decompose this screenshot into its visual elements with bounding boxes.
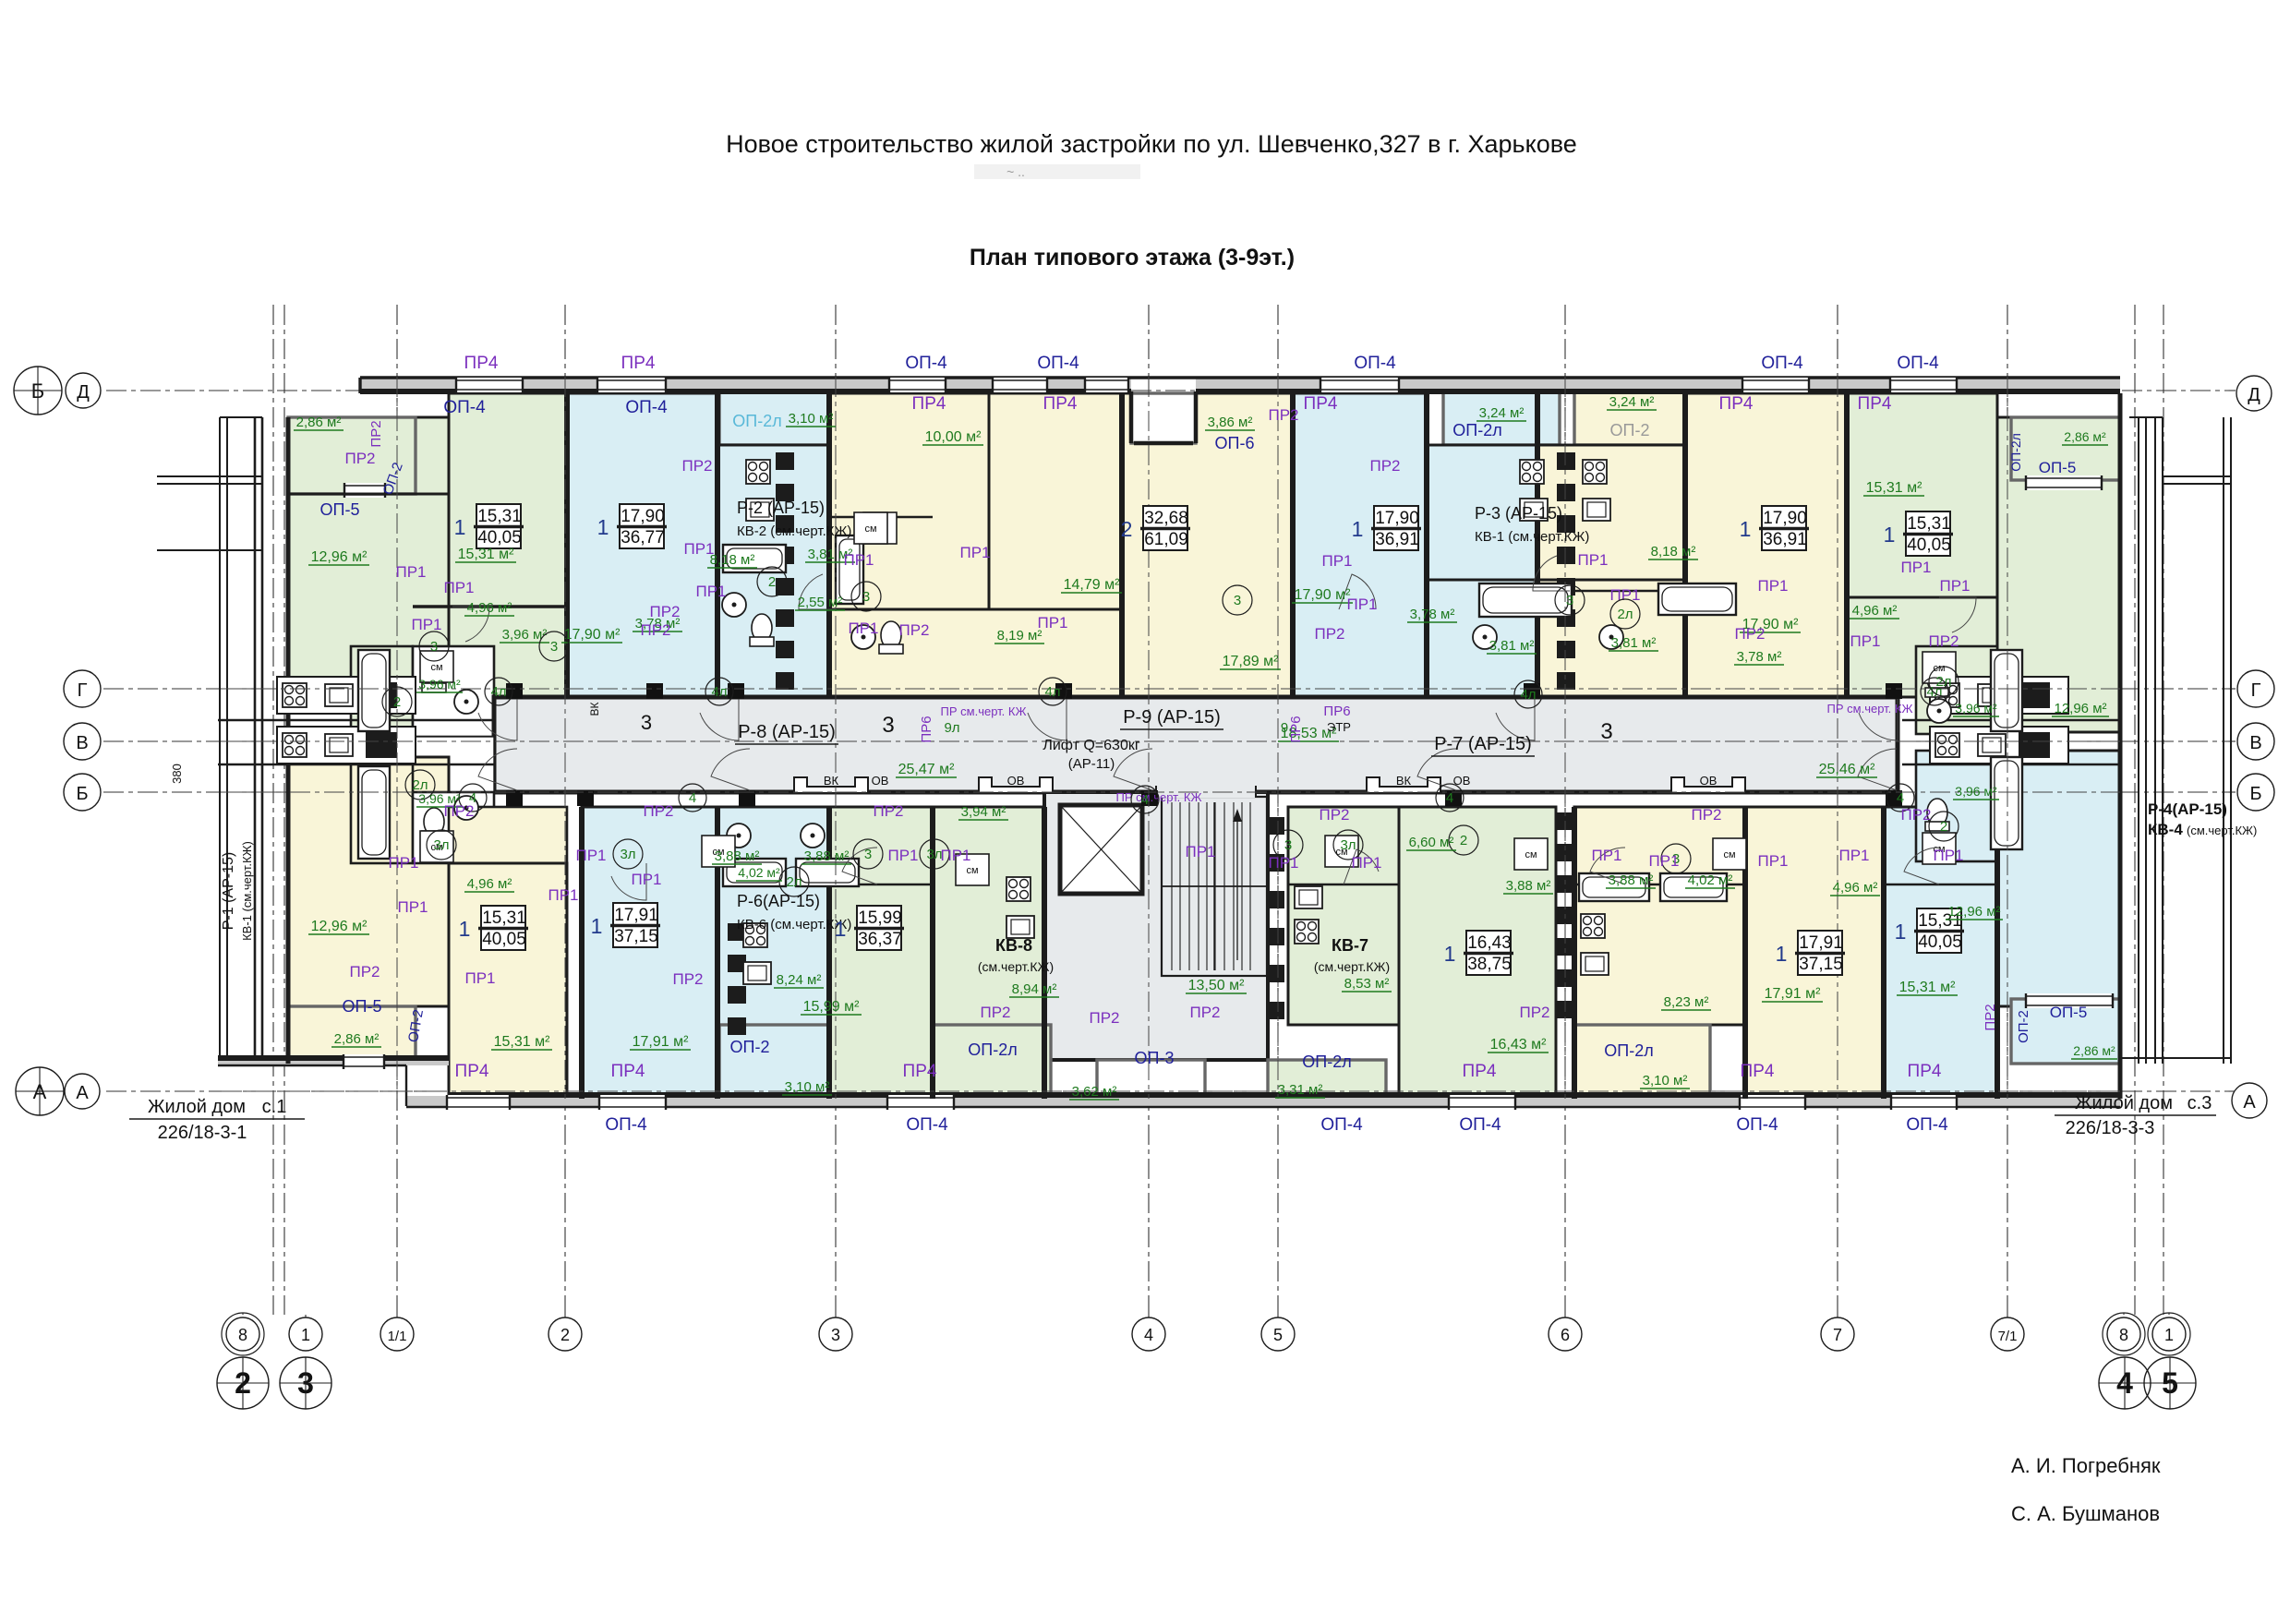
svg-text:ПР2: ПР2	[640, 621, 670, 639]
svg-text:8,24 м²: 8,24 м²	[777, 972, 822, 988]
svg-text:ПР1: ПР1	[1648, 852, 1679, 870]
svg-text:15,31: 15,31	[1907, 514, 1951, 534]
svg-text:(см.черт.КЖ): (см.черт.КЖ)	[1314, 959, 1390, 974]
svg-text:4л: 4л	[490, 684, 506, 700]
svg-text:Д: Д	[77, 382, 90, 403]
svg-text:3,88 м²: 3,88 м²	[1609, 872, 1654, 888]
svg-text:ПР1: ПР1	[1939, 577, 1970, 595]
svg-text:ОП-2л: ОП-2л	[1604, 1041, 1653, 1060]
svg-text:В: В	[2249, 733, 2261, 753]
svg-text:4,02 м²: 4,02 м²	[1688, 872, 1733, 888]
svg-text:ОВ: ОВ	[872, 774, 889, 788]
svg-text:4: 4	[1144, 1326, 1153, 1344]
svg-text:ПР2: ПР2	[898, 621, 929, 639]
svg-text:ОВ: ОВ	[1700, 774, 1717, 788]
svg-text:КВ-4: КВ-4	[2148, 821, 2183, 838]
svg-text:ПР1: ПР1	[1577, 551, 1608, 569]
svg-text:15,99: 15,99	[858, 908, 902, 928]
svg-text:ПР4: ПР4	[1463, 1062, 1497, 1081]
svg-text:ПР1: ПР1	[1037, 614, 1067, 632]
svg-text:~ ..: ~ ..	[1006, 164, 1025, 179]
svg-text:3,10 м²: 3,10 м²	[789, 411, 834, 427]
svg-text:ПР1: ПР1	[631, 871, 661, 888]
svg-text:ПР4: ПР4	[1043, 394, 1078, 414]
svg-text:ПР4: ПР4	[611, 1062, 645, 1081]
svg-text:ПР1: ПР1	[683, 540, 714, 558]
svg-text:1: 1	[1884, 523, 1896, 547]
svg-text:25,47 м²: 25,47 м²	[898, 762, 955, 777]
svg-text:ПР1: ПР1	[1591, 847, 1621, 864]
svg-text:ОП-2: ОП-2	[730, 1038, 770, 1056]
svg-text:А. И. Погребняк: А. И. Погребняк	[2011, 1454, 2161, 1477]
svg-text:ПР2: ПР2	[649, 603, 680, 620]
svg-text:КВ-2 (см.черт.КЖ): КВ-2 (см.черт.КЖ)	[737, 523, 851, 539]
svg-text:2: 2	[1940, 819, 1947, 835]
svg-text:25,46 м²: 25,46 м²	[1819, 762, 1875, 777]
svg-text:32,68: 32,68	[1144, 509, 1188, 528]
svg-text:ПР2: ПР2	[1189, 1004, 1220, 1021]
svg-text:16,43 м²: 16,43 м²	[1490, 1037, 1547, 1053]
svg-text:12,96 м²: 12,96 м²	[2054, 701, 2106, 716]
svg-text:ПР1: ПР1	[411, 616, 441, 633]
svg-text:ОП-5: ОП-5	[2039, 459, 2077, 476]
svg-text:1: 1	[454, 515, 466, 539]
svg-text:ОП-4: ОП-4	[1761, 354, 1803, 373]
svg-text:2л: 2л	[786, 874, 801, 890]
svg-text:ПР2: ПР2	[1691, 806, 1721, 824]
svg-text:8,18 м²: 8,18 м²	[710, 552, 755, 568]
svg-text:ОП-3: ОП-3	[1135, 1049, 1175, 1067]
svg-text:ПР4: ПР4	[1858, 394, 1892, 414]
svg-text:ПР1: ПР1	[1933, 847, 1963, 864]
svg-text:ПР1: ПР1	[848, 620, 878, 637]
svg-text:40,05: 40,05	[477, 528, 522, 547]
svg-text:8: 8	[2119, 1326, 2128, 1344]
svg-text:ПР2: ПР2	[1734, 625, 1765, 643]
svg-text:1: 1	[301, 1326, 310, 1344]
svg-text:3,88 м²: 3,88 м²	[804, 848, 850, 864]
svg-text:1: 1	[459, 917, 471, 941]
svg-text:36,91: 36,91	[1375, 530, 1419, 549]
svg-text:ПР2: ПР2	[443, 802, 474, 820]
svg-text:ОП-2: ОП-2	[2016, 1010, 2031, 1043]
svg-text:2л: 2л	[1935, 674, 1951, 690]
svg-text:ПР1: ПР1	[1268, 854, 1298, 872]
svg-text:ОП-2л: ОП-2л	[968, 1041, 1017, 1059]
svg-text:ПР4: ПР4	[1741, 1062, 1775, 1081]
svg-text:4: 4	[1141, 792, 1149, 808]
svg-text:Жилой дом: Жилой дом	[148, 1097, 246, 1117]
svg-text:ПР4: ПР4	[1719, 394, 1754, 414]
svg-text:Д: Д	[2248, 385, 2260, 405]
svg-text:3: 3	[430, 639, 438, 655]
svg-text:ПР4: ПР4	[912, 394, 946, 414]
svg-text:ПР1: ПР1	[1185, 843, 1215, 860]
svg-text:ПР4: ПР4	[1304, 394, 1338, 414]
svg-text:ОП-2л: ОП-2л	[732, 412, 781, 430]
svg-text:36,37: 36,37	[858, 930, 902, 949]
svg-text:3л: 3л	[620, 847, 635, 862]
svg-text:1: 1	[2164, 1326, 2174, 1344]
svg-text:ПР1: ПР1	[887, 847, 918, 864]
svg-text:4: 4	[1897, 790, 1904, 806]
svg-text:3,86 м²: 3,86 м²	[1208, 415, 1253, 430]
svg-text:4л: 4л	[1044, 684, 1060, 700]
svg-text:КВ-1 (см.черт.КЖ): КВ-1 (см.черт.КЖ)	[240, 841, 254, 941]
svg-text:16,43: 16,43	[1467, 933, 1512, 953]
svg-text:9: 9	[1281, 720, 1288, 736]
svg-text:4: 4	[689, 790, 696, 806]
svg-text:А: А	[2243, 1092, 2256, 1113]
svg-text:12,96 м²: 12,96 м²	[1947, 904, 2000, 920]
svg-text:17,91 м²: 17,91 м²	[633, 1034, 689, 1050]
svg-text:ПР2: ПР2	[368, 420, 384, 447]
svg-text:ПР1: ПР1	[843, 551, 874, 569]
svg-text:ПР1: ПР1	[1900, 559, 1931, 576]
svg-text:8,19 м²: 8,19 м²	[997, 628, 1043, 644]
svg-text:3,96 м²: 3,96 м²	[418, 677, 461, 692]
svg-text:2,55 м²: 2,55 м²	[798, 595, 843, 610]
svg-text:ОП-5: ОП-5	[343, 997, 382, 1016]
svg-text:КВ-7: КВ-7	[1332, 936, 1368, 955]
svg-text:3,10 м²: 3,10 м²	[1643, 1073, 1688, 1089]
svg-text:226/18-3-3: 226/18-3-3	[2066, 1118, 2155, 1138]
svg-text:ПР1: ПР1	[443, 579, 474, 596]
svg-text:ВК: ВК	[824, 774, 839, 788]
svg-text:ПР1: ПР1	[397, 898, 428, 916]
svg-text:см: см	[430, 662, 442, 673]
svg-text:15,31 м²: 15,31 м²	[494, 1034, 550, 1050]
svg-text:Р-6(АР-15): Р-6(АР-15)	[737, 892, 820, 910]
svg-text:А: А	[76, 1083, 89, 1103]
svg-text:с.3: с.3	[2188, 1093, 2212, 1113]
svg-text:ОП-4: ОП-4	[905, 354, 947, 373]
svg-text:1: 1	[597, 515, 609, 539]
svg-text:ОП-5: ОП-5	[2050, 1004, 2088, 1021]
svg-text:ПР2: ПР2	[1369, 457, 1400, 475]
svg-text:3,24 м²: 3,24 м²	[1479, 405, 1525, 421]
svg-text:ПР1: ПР1	[1609, 586, 1640, 604]
svg-text:ПР1: ПР1	[1321, 552, 1352, 570]
svg-text:3,81 м²: 3,81 м²	[1611, 635, 1657, 651]
svg-text:ПР1: ПР1	[1757, 852, 1788, 870]
svg-text:15,31 м²: 15,31 м²	[1866, 480, 1922, 496]
svg-text:40,05: 40,05	[1907, 535, 1951, 555]
svg-text:Р-1 (АР-15): Р-1 (АР-15)	[221, 852, 236, 930]
svg-text:ПР1: ПР1	[1850, 632, 1880, 650]
svg-text:4л: 4л	[711, 684, 727, 700]
svg-text:ОП-4: ОП-4	[1320, 1115, 1363, 1135]
svg-text:226/18-3-1: 226/18-3-1	[158, 1123, 247, 1143]
svg-text:ПР2: ПР2	[1089, 1009, 1119, 1027]
svg-text:2,86 м²: 2,86 м²	[2064, 429, 2106, 444]
svg-text:ПР2: ПР2	[1519, 1004, 1549, 1021]
svg-text:40,05: 40,05	[482, 930, 526, 949]
svg-text:3,96 м²: 3,96 м²	[1955, 701, 1997, 716]
svg-text:3,24 м²: 3,24 м²	[1609, 394, 1655, 410]
svg-text:ПР1: ПР1	[464, 969, 495, 987]
svg-text:2: 2	[560, 1326, 570, 1344]
svg-text:17,89 м²: 17,89 м²	[1223, 654, 1279, 669]
svg-text:ОП-6: ОП-6	[1215, 434, 1255, 452]
svg-text:3: 3	[1566, 593, 1573, 608]
svg-text:3л: 3л	[1340, 837, 1356, 853]
svg-text:ПР1: ПР1	[388, 854, 418, 872]
svg-text:15,31 м²: 15,31 м²	[458, 547, 514, 562]
svg-text:2,86 м²: 2,86 м²	[296, 415, 342, 430]
svg-text:ПР1: ПР1	[695, 583, 726, 600]
svg-text:см: см	[1723, 849, 1735, 860]
svg-text:ПР1: ПР1	[575, 847, 606, 864]
svg-text:3: 3	[641, 711, 652, 734]
svg-text:17,91 м²: 17,91 м²	[1765, 986, 1821, 1002]
svg-text:ПР1: ПР1	[1346, 595, 1377, 613]
svg-text:4,96 м²: 4,96 м²	[1833, 880, 1878, 896]
svg-text:ПР см.черт. КЖ: ПР см.черт. КЖ	[1827, 702, 1913, 716]
svg-text:ПР2: ПР2	[344, 450, 375, 467]
svg-text:ПР1: ПР1	[959, 544, 990, 561]
svg-text:ПР2: ПР2	[643, 802, 673, 820]
svg-text:2,86 м²: 2,86 м²	[334, 1031, 380, 1047]
svg-text:37,15: 37,15	[614, 927, 658, 946]
svg-text:8,94 м²: 8,94 м²	[1012, 981, 1057, 997]
svg-text:см: см	[966, 865, 978, 876]
svg-text:ПР1: ПР1	[395, 563, 426, 581]
svg-text:ПР6: ПР6	[1288, 716, 1304, 742]
svg-text:36,77: 36,77	[621, 528, 665, 547]
svg-text:4,96 м²: 4,96 м²	[467, 876, 512, 892]
svg-text:(см.черт.КЖ): (см.черт.КЖ)	[978, 959, 1054, 974]
svg-text:ОВ: ОВ	[1007, 774, 1025, 788]
svg-text:ПР2: ПР2	[672, 970, 703, 988]
svg-text:ПР4: ПР4	[621, 354, 656, 373]
svg-text:ПР2: ПР2	[1900, 806, 1931, 824]
svg-text:8,18 м²: 8,18 м²	[1651, 544, 1696, 559]
svg-text:ПР4: ПР4	[903, 1062, 937, 1081]
svg-text:3: 3	[882, 713, 894, 738]
svg-text:ВК: ВК	[1396, 774, 1412, 788]
svg-text:3: 3	[1234, 593, 1241, 608]
svg-text:37,15: 37,15	[1799, 955, 1843, 974]
svg-text:КВ-1 (см.черт.КЖ): КВ-1 (см.черт.КЖ)	[1475, 529, 1589, 545]
svg-text:КВ-8: КВ-8	[995, 936, 1032, 955]
svg-text:3,88 м²: 3,88 м²	[715, 848, 760, 864]
svg-text:9л: 9л	[944, 720, 959, 736]
svg-text:7: 7	[1833, 1326, 1842, 1344]
svg-text:2: 2	[1460, 833, 1467, 848]
svg-text:12,96 м²: 12,96 м²	[311, 919, 368, 934]
svg-text:3: 3	[831, 1326, 840, 1344]
svg-text:Лифт Q=630кг: Лифт Q=630кг	[1043, 738, 1140, 753]
svg-text:ОП-5: ОП-5	[320, 500, 360, 519]
svg-text:61,09: 61,09	[1144, 530, 1188, 549]
svg-text:с.1: с.1	[262, 1097, 287, 1117]
svg-text:17,90 м²: 17,90 м²	[1295, 587, 1351, 603]
svg-text:4: 4	[1446, 790, 1453, 806]
svg-text:ОП-4: ОП-4	[1906, 1115, 1948, 1135]
svg-text:ОП-2л: ОП-2л	[1302, 1053, 1351, 1071]
svg-text:ПР2: ПР2	[980, 1004, 1010, 1021]
svg-text:Б: Б	[76, 784, 88, 804]
svg-text:17,90: 17,90	[1375, 509, 1419, 528]
svg-text:3,96 м²: 3,96 м²	[1955, 784, 1997, 799]
svg-text:3: 3	[1600, 719, 1612, 744]
svg-text:1: 1	[1444, 942, 1456, 966]
svg-text:ЭТР: ЭТР	[1327, 720, 1351, 734]
svg-text:ОП-4: ОП-4	[906, 1115, 948, 1135]
svg-text:4,96 м²: 4,96 м²	[1852, 603, 1898, 619]
svg-text:Р-7 (АР-15): Р-7 (АР-15)	[1434, 734, 1532, 754]
svg-text:С. А. Бушманов: С. А. Бушманов	[2011, 1502, 2160, 1525]
svg-text:ВК: ВК	[588, 702, 601, 716]
svg-text:ПР2: ПР2	[1928, 632, 1959, 650]
svg-text:3: 3	[862, 589, 870, 605]
svg-text:Р-9 (АР-15): Р-9 (АР-15)	[1123, 707, 1221, 728]
svg-text:15,31: 15,31	[477, 507, 522, 526]
svg-text:ОП-4: ОП-4	[1037, 354, 1079, 373]
svg-text:Р-8 (АР-15): Р-8 (АР-15)	[738, 722, 836, 742]
svg-text:ПР2: ПР2	[1314, 625, 1344, 643]
svg-text:3,62 м²: 3,62 м²	[1072, 1084, 1117, 1100]
svg-text:ПР4: ПР4	[464, 354, 499, 373]
svg-text:ПР1: ПР1	[940, 847, 970, 864]
svg-text:Жилой дом: Жилой дом	[2075, 1093, 2173, 1113]
svg-text:10,00 м²: 10,00 м²	[925, 429, 982, 445]
svg-text:ПР6: ПР6	[919, 716, 934, 742]
svg-text:ОП-2л: ОП-2л	[1452, 421, 1501, 439]
svg-text:15,31 м²: 15,31 м²	[1899, 980, 1956, 995]
svg-text:3л: 3л	[433, 837, 449, 853]
svg-text:Г: Г	[2251, 680, 2261, 701]
svg-text:ПР1: ПР1	[1351, 854, 1381, 872]
svg-text:5: 5	[1273, 1326, 1283, 1344]
svg-text:2: 2	[768, 574, 776, 590]
svg-text:ОП-4: ОП-4	[605, 1115, 647, 1135]
svg-text:3,31 м²: 3,31 м²	[1278, 1082, 1323, 1098]
svg-text:3,81 м²: 3,81 м²	[1489, 638, 1535, 654]
svg-text:15,99 м²: 15,99 м²	[803, 999, 860, 1015]
svg-text:см: см	[1933, 663, 1945, 674]
svg-text:8,53 м²: 8,53 м²	[1344, 976, 1390, 992]
svg-text:Новое строительство жилой заст: Новое строительство жилой застройки по у…	[726, 130, 1577, 158]
svg-text:ПР1: ПР1	[548, 886, 578, 904]
svg-text:см: см	[864, 523, 876, 535]
svg-text:ПР1: ПР1	[1838, 847, 1869, 864]
svg-text:ПР2: ПР2	[1268, 406, 1298, 424]
svg-text:1: 1	[1776, 942, 1788, 966]
svg-text:ОП-4: ОП-4	[1736, 1115, 1778, 1135]
svg-text:ПР2: ПР2	[873, 802, 903, 820]
svg-text:(АР-11): (АР-11)	[1068, 756, 1115, 772]
svg-text:2: 2	[1121, 517, 1133, 541]
svg-text:1: 1	[1895, 920, 1907, 944]
svg-text:380: 380	[170, 764, 184, 784]
svg-text:4,96 м²: 4,96 м²	[467, 600, 512, 616]
svg-text:1/1: 1/1	[388, 1329, 407, 1344]
svg-text:ПР2: ПР2	[1319, 806, 1349, 824]
svg-text:17,91: 17,91	[1799, 933, 1843, 953]
svg-text:3,94 м²: 3,94 м²	[961, 804, 1006, 820]
svg-text:ОП-4: ОП-4	[625, 398, 668, 417]
svg-text:1: 1	[1352, 517, 1364, 541]
svg-text:ПР6: ПР6	[1323, 704, 1350, 719]
svg-text:12,96 м²: 12,96 м²	[311, 549, 368, 565]
svg-text:ОП-4: ОП-4	[1459, 1115, 1501, 1135]
svg-text:17,90: 17,90	[1763, 509, 1807, 528]
svg-text:Б: Б	[2249, 784, 2261, 804]
svg-text:3,78 м²: 3,78 м²	[1410, 607, 1455, 622]
svg-text:6: 6	[1561, 1326, 1570, 1344]
svg-text:17,90: 17,90	[621, 507, 665, 526]
svg-text:ПР2: ПР2	[681, 457, 712, 475]
svg-text:7/1: 7/1	[1998, 1329, 2018, 1344]
svg-text:ПР1: ПР1	[1757, 577, 1788, 595]
svg-text:15,31: 15,31	[482, 908, 526, 928]
svg-text:ПР2: ПР2	[349, 963, 380, 980]
svg-text:3,88 м²: 3,88 м²	[1506, 878, 1551, 894]
svg-text:Р-2 (АР-15): Р-2 (АР-15)	[737, 499, 825, 517]
svg-text:1: 1	[1740, 517, 1752, 541]
svg-text:(см.черт.КЖ): (см.черт.КЖ)	[2187, 824, 2257, 837]
svg-text:8: 8	[238, 1326, 247, 1344]
svg-text:8,23 м²: 8,23 м²	[1664, 994, 1709, 1010]
svg-text:3: 3	[864, 847, 872, 862]
svg-text:17,91: 17,91	[614, 906, 658, 925]
svg-text:ПР2: ПР2	[1983, 1004, 1998, 1030]
svg-text:Р-4(АР-15): Р-4(АР-15)	[2148, 800, 2227, 818]
svg-text:14,79 м²: 14,79 м²	[1064, 577, 1120, 593]
svg-text:В: В	[76, 733, 88, 753]
svg-text:3,10 м²: 3,10 м²	[785, 1079, 830, 1095]
svg-text:4л: 4л	[1520, 687, 1536, 703]
svg-text:13,50 м²: 13,50 м²	[1188, 978, 1245, 993]
svg-text:2: 2	[393, 694, 401, 710]
svg-text:4,02 м²: 4,02 м²	[738, 865, 780, 880]
svg-text:6,60 м²: 6,60 м²	[1409, 835, 1454, 850]
svg-text:3: 3	[1284, 837, 1292, 853]
svg-text:ПР4: ПР4	[455, 1062, 489, 1081]
svg-text:1: 1	[835, 917, 847, 941]
svg-text:2л: 2л	[1617, 607, 1633, 622]
svg-text:ОП-4: ОП-4	[443, 398, 486, 417]
svg-text:Г: Г	[78, 680, 88, 701]
svg-text:38,75: 38,75	[1467, 955, 1512, 974]
svg-text:Р-3 (АР-15): Р-3 (АР-15)	[1475, 504, 1562, 523]
svg-text:ПР4: ПР4	[1908, 1062, 1942, 1081]
svg-text:40,05: 40,05	[1918, 932, 1962, 952]
svg-text:План типового этажа (3-9эт.): План типового этажа (3-9эт.)	[970, 245, 1295, 271]
svg-text:1: 1	[591, 914, 603, 938]
svg-text:3: 3	[550, 639, 558, 655]
svg-text:ОП-2: ОП-2	[1610, 421, 1650, 439]
svg-text:36,91: 36,91	[1763, 530, 1807, 549]
svg-text:17,90 м²: 17,90 м²	[564, 627, 621, 643]
svg-text:3,78 м²: 3,78 м²	[1737, 649, 1782, 665]
svg-text:ОП-4: ОП-4	[1897, 354, 1939, 373]
svg-text:2,86 м²: 2,86 м²	[2073, 1043, 2115, 1058]
svg-text:ОП-2л: ОП-2л	[2008, 433, 2023, 472]
svg-text:см: см	[1525, 849, 1537, 860]
svg-text:ОП-4: ОП-4	[1354, 354, 1396, 373]
svg-text:ПР см.черт. КЖ: ПР см.черт. КЖ	[941, 704, 1027, 718]
